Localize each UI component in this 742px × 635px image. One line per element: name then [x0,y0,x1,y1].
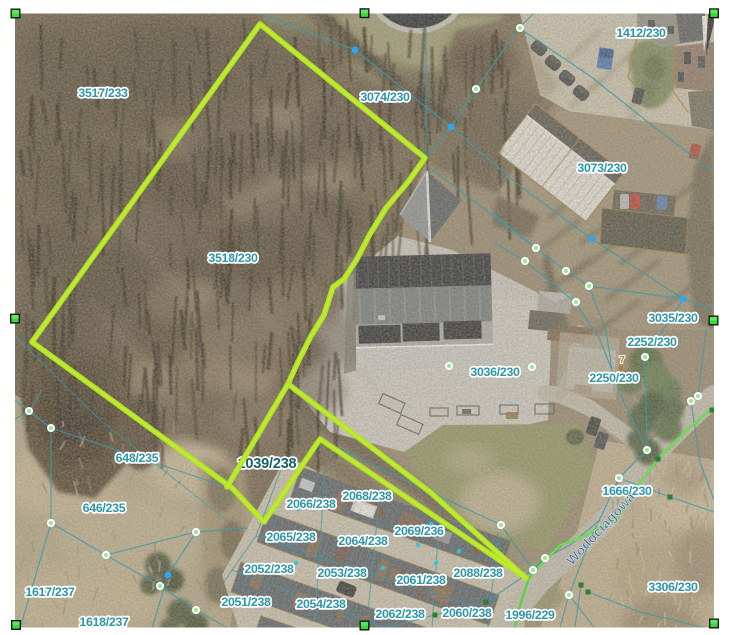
svg-text:2252/230: 2252/230 [627,335,677,349]
svg-text:1618/237: 1618/237 [79,615,129,629]
svg-text:2051/238: 2051/238 [221,595,271,609]
svg-text:2088/238: 2088/238 [453,566,503,580]
svg-text:2068/238: 2068/238 [342,489,392,503]
svg-text:2250/230: 2250/230 [589,371,639,385]
svg-text:2052/238: 2052/238 [244,562,294,576]
svg-text:2061/238: 2061/238 [396,573,446,587]
svg-text:3074/230: 3074/230 [360,90,410,104]
svg-text:646/235: 646/235 [83,501,126,515]
svg-text:3306/230: 3306/230 [648,580,698,594]
svg-text:3035/230: 3035/230 [648,311,698,325]
svg-text:1996/229: 1996/229 [505,608,555,622]
svg-text:2065/238: 2065/238 [266,530,316,544]
svg-text:3036/230: 3036/230 [470,365,520,379]
svg-text:3073/230: 3073/230 [577,161,627,175]
svg-text:3518/230: 3518/230 [208,251,258,265]
svg-text:2060/238: 2060/238 [442,606,492,620]
svg-text:2062/238: 2062/238 [375,607,425,621]
svg-text:2053/238: 2053/238 [317,566,367,580]
svg-text:3517/233: 3517/233 [78,86,128,100]
svg-text:648/235: 648/235 [116,451,159,465]
svg-text:1412/230: 1412/230 [616,26,666,40]
svg-text:2066/238: 2066/238 [286,497,336,511]
svg-text:2064/238: 2064/238 [338,534,388,548]
svg-text:7: 7 [619,355,625,366]
svg-text:2069/236: 2069/236 [394,524,444,538]
svg-text:2054/238: 2054/238 [296,597,346,611]
svg-text:1617/237: 1617/237 [25,585,75,599]
